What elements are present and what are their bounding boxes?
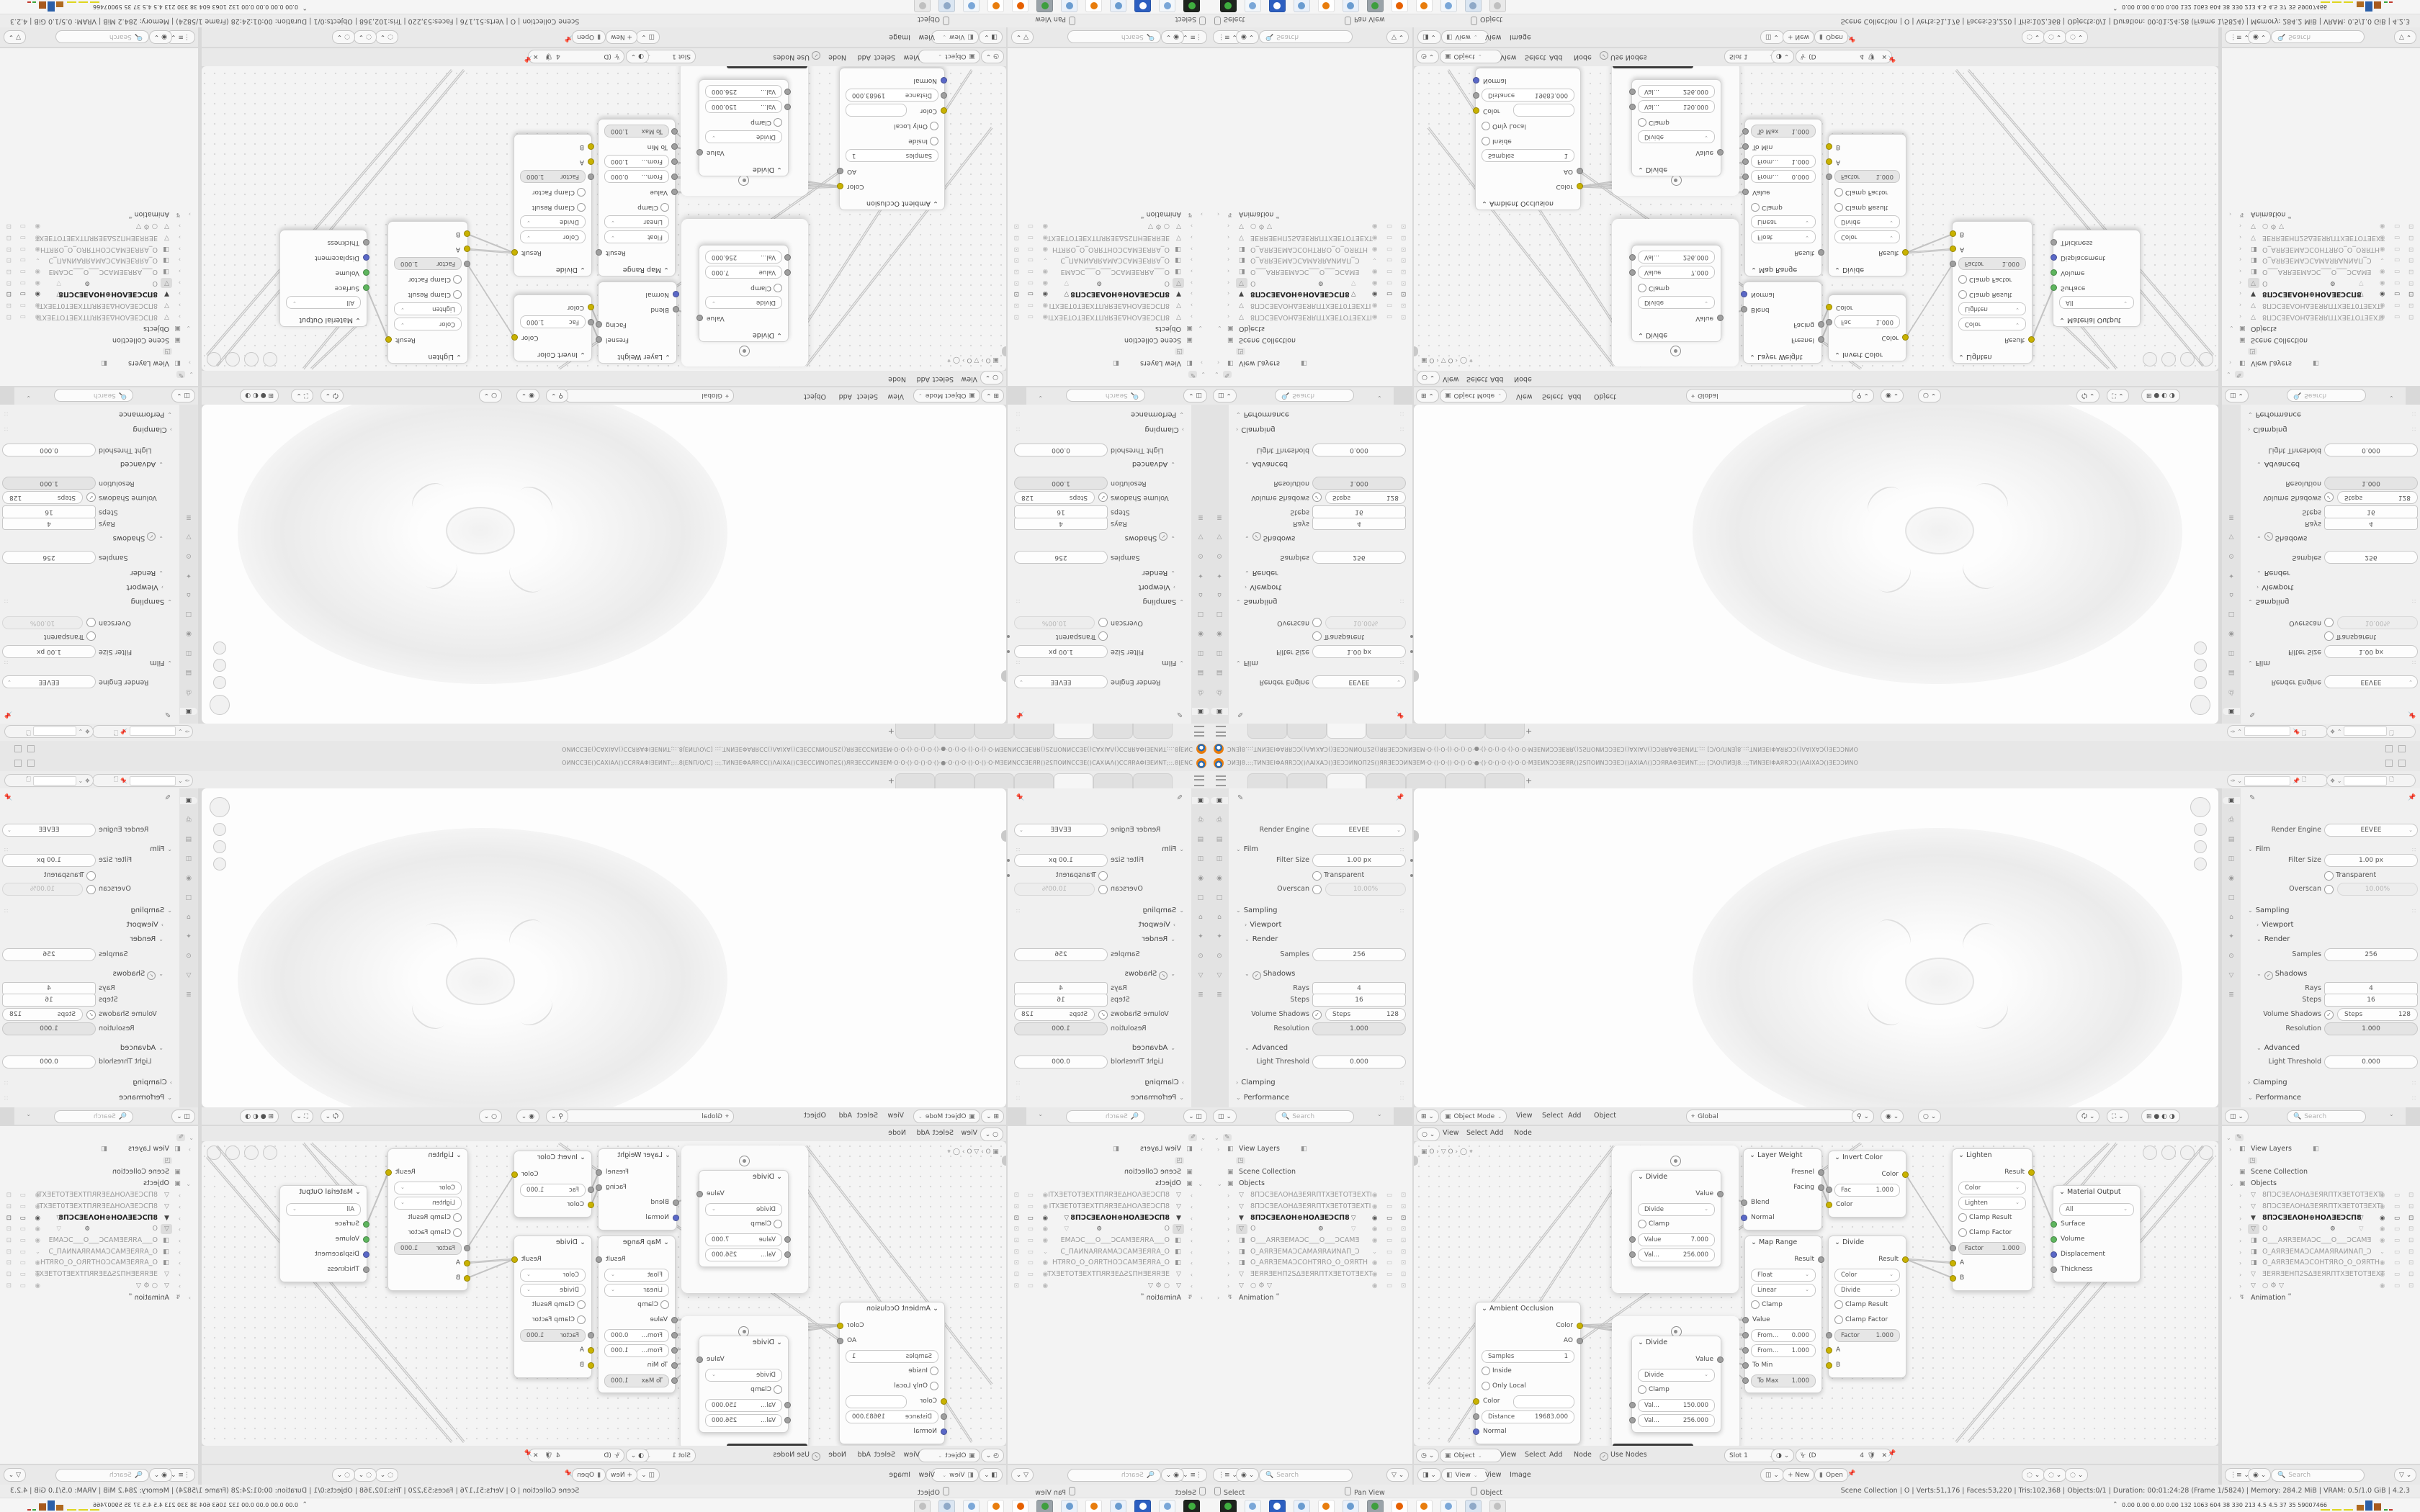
outliner-row[interactable]: ›◧View Layers◧ bbox=[2222, 1144, 2420, 1155]
copy-icon[interactable]: 🗋 bbox=[2389, 726, 2393, 737]
properties-tab-icon[interactable]: ⌂ bbox=[2223, 591, 2240, 598]
input-socket[interactable] bbox=[941, 92, 947, 99]
pin-icon[interactable]: 📌 bbox=[2293, 729, 2300, 735]
viewport-menu-add[interactable]: Add bbox=[839, 392, 852, 400]
node-field[interactable]: To Max1.000 bbox=[1751, 1374, 1816, 1387]
input-socket[interactable] bbox=[1826, 174, 1832, 180]
render-engine-dropdown[interactable]: EEVEE⌄ bbox=[2324, 824, 2418, 837]
outliner-search-input[interactable]: 🔍Search bbox=[1259, 1469, 1353, 1482]
node-dropdown[interactable]: Color⌄ bbox=[1958, 318, 2026, 330]
node-dropdown[interactable]: Lighten⌄ bbox=[1958, 302, 2026, 315]
editor-type-dropdown[interactable]: ◨ ⌄ bbox=[1417, 30, 1441, 44]
input-socket[interactable] bbox=[671, 1317, 678, 1323]
input-socket[interactable] bbox=[588, 1332, 594, 1338]
checkbox[interactable]: ✓ bbox=[86, 1010, 96, 1020]
workspace-tab[interactable] bbox=[1406, 723, 1446, 739]
open-image-button[interactable]: ▮Open bbox=[572, 1468, 606, 1482]
properties-tab-icon[interactable]: ⌂ bbox=[1211, 591, 1228, 598]
checkbox[interactable] bbox=[2324, 885, 2334, 894]
filter-dropdown[interactable]: ▽ ⌄ bbox=[1011, 1468, 1034, 1482]
minimize-button[interactable] bbox=[27, 760, 35, 767]
input-socket[interactable] bbox=[1742, 143, 1749, 150]
outliner-row[interactable]: ›▽8ΠƆCƎEΛOHΔƎEЯRΠTXƎETOTƎEXTI◉▭⊡ bbox=[2222, 1190, 2420, 1201]
node-layer-weight[interactable]: ⌄ Layer WeightFresnelFacingBlendNormal bbox=[1743, 1148, 1822, 1230]
node-menu-select[interactable]: Select bbox=[933, 1129, 954, 1137]
outliner-row[interactable]: ›◨O_AЯRƎEMAƆCAMAЯRAИNAΠ_Ɔ⌄▭⊡ bbox=[1210, 254, 1412, 265]
properties-tab-icon[interactable]: ▣ bbox=[2223, 708, 2240, 715]
grid-toggle-icon[interactable] bbox=[225, 352, 240, 366]
proportional-edit-dropdown[interactable]: ◉ ⌄ bbox=[516, 1110, 539, 1123]
output-socket[interactable] bbox=[837, 1338, 843, 1344]
calculator2-icon[interactable] bbox=[1061, 1500, 1077, 1512]
outliner-row[interactable]: ◳ bbox=[2222, 1156, 2420, 1166]
subsection-render[interactable]: ⌄Render bbox=[1142, 935, 1175, 943]
input-socket[interactable] bbox=[671, 128, 678, 135]
image-menu-image[interactable]: Image bbox=[889, 1471, 910, 1479]
overscan-field[interactable]: 10.00% bbox=[2337, 883, 2418, 896]
section-sampling[interactable]: ⌄Sampling bbox=[130, 598, 172, 606]
options-dropdown[interactable]: ⌄ bbox=[2389, 395, 2394, 401]
properties-search-input[interactable]: 🔍Search bbox=[1066, 1110, 1145, 1123]
overscan-field[interactable]: 10.00% bbox=[2, 883, 83, 896]
light-threshold-field[interactable]: 0.000 bbox=[2, 1056, 96, 1068]
outliner-row[interactable]: ›▽○ ⚙ ▽◉▭⊡ bbox=[2222, 220, 2420, 231]
overlay-toggle[interactable]: 🗘 ⌄ bbox=[2076, 389, 2099, 402]
section-film[interactable]: ⌄Film bbox=[2248, 845, 2270, 853]
filter-size-field[interactable]: 1.00 px bbox=[1014, 854, 1108, 867]
pin-icon[interactable]: 📌 bbox=[1888, 55, 1896, 62]
outliner-row[interactable]: ›↯Animation ⁴² bbox=[2222, 1292, 2420, 1303]
snap-dropdown[interactable]: ⚲ ⌄ bbox=[546, 1110, 568, 1123]
input-socket[interactable] bbox=[1950, 261, 1956, 267]
view-layer-selector[interactable]: ❖ ⌄🗋 bbox=[2326, 774, 2416, 787]
output-socket[interactable] bbox=[696, 1356, 703, 1363]
node-checkbox[interactable] bbox=[660, 1300, 669, 1309]
node-field[interactable]: Value7.000 bbox=[1638, 1233, 1715, 1246]
material-preview-dropdown[interactable]: ◑ ⌄ bbox=[626, 1449, 649, 1462]
input-socket[interactable] bbox=[1741, 306, 1747, 312]
files-icon[interactable] bbox=[938, 1500, 955, 1512]
node-dropdown[interactable]: Lighten⌄ bbox=[394, 1197, 462, 1210]
properties-tab-icon[interactable]: ⊙ bbox=[2223, 953, 2240, 960]
outliner-row[interactable]: ▣Scene Collection bbox=[2222, 334, 2420, 345]
node-invert-color[interactable]: ⌄ Invert ColorColorFac1.000Color bbox=[1828, 1151, 1906, 1218]
node-dropdown[interactable]: Float⌄ bbox=[1751, 1269, 1816, 1282]
node-menu-node[interactable]: Node bbox=[828, 53, 846, 61]
subsection-shadows[interactable]: ⌄✓Shadows bbox=[113, 532, 163, 542]
subsection-render[interactable]: ⌄Render bbox=[2257, 935, 2290, 943]
input-socket[interactable] bbox=[1826, 304, 1832, 310]
node-dropdown[interactable]: Divide⌄ bbox=[705, 130, 782, 143]
outliner-row[interactable]: ›◨O___AЯRƎEMAƆC___O___ƆCAMƎ◉▭⊡ bbox=[2222, 1236, 2420, 1246]
input-socket[interactable] bbox=[1629, 104, 1636, 110]
input-socket[interactable] bbox=[363, 1221, 369, 1228]
zoom-gizmo-icon[interactable] bbox=[263, 352, 277, 366]
subsection-advanced[interactable]: ⌄Advanced bbox=[120, 460, 163, 468]
node-dropdown[interactable]: Divide⌄ bbox=[1638, 1203, 1715, 1216]
outliner-row[interactable]: ›◨O_AЯRƎEMAƆCOHTЯRO_O_OЯRTH◉▭⊡ bbox=[1008, 243, 1210, 254]
properties-tab-icon[interactable]: ◫ bbox=[1192, 855, 1209, 863]
pin-icon[interactable]: 📌 bbox=[2408, 794, 2416, 801]
properties-tab-icon[interactable]: ≣ bbox=[1192, 513, 1209, 521]
node-checkbox[interactable] bbox=[1751, 203, 1760, 212]
node-dropdown[interactable]: Linear⌄ bbox=[1751, 215, 1816, 228]
files-icon[interactable] bbox=[1465, 0, 1482, 12]
calculator2-icon[interactable] bbox=[1061, 0, 1077, 12]
node-field[interactable]: Val...150.000 bbox=[1638, 100, 1715, 113]
snap-dropdown[interactable]: ⚲ ⌄ bbox=[1852, 1110, 1874, 1123]
section-clamping[interactable]: ›Clamping bbox=[133, 426, 172, 433]
output-socket[interactable] bbox=[1717, 149, 1724, 156]
node-field[interactable]: Value7.000 bbox=[1638, 266, 1715, 279]
node-map-range[interactable]: ⌄ Map RangeResultFloat⌄Linear⌄ClampValue… bbox=[1744, 119, 1822, 276]
section-performance[interactable]: ⌄Performance bbox=[2248, 1094, 2301, 1102]
properties-tab-icon[interactable]: ▤ bbox=[1192, 669, 1209, 676]
input-socket[interactable] bbox=[1950, 1275, 1956, 1282]
section-sampling[interactable]: ⌄Sampling bbox=[1236, 906, 1278, 914]
new-workspace-button[interactable]: + bbox=[1525, 776, 1532, 786]
resolution-field[interactable]: 1.000 bbox=[1014, 1022, 1108, 1035]
editor-type-dropdown[interactable]: ○ ⌄ bbox=[1417, 371, 1440, 384]
viewport-menu-view[interactable]: View bbox=[1516, 1112, 1533, 1120]
node-field[interactable]: To Max1.000 bbox=[604, 125, 669, 138]
outliner-row[interactable]: ›▽ƎEЯRƎEHΠ2SΔƎEЯRΠTXƎETOTƎEXT◉▭⊡ bbox=[0, 1269, 198, 1280]
render-engine-dropdown[interactable]: EEVEE⌄ bbox=[2, 824, 96, 837]
new-image-button[interactable]: + New bbox=[1783, 1468, 1814, 1482]
output-socket[interactable] bbox=[1717, 1191, 1724, 1197]
input-socket[interactable] bbox=[1826, 1187, 1832, 1193]
section-sampling[interactable]: ⌄Sampling bbox=[1142, 906, 1184, 914]
outliner-search-input[interactable]: 🔍Search bbox=[2271, 30, 2365, 43]
outliner-row[interactable]: ›▽8ΠƆCƎEΛOHΔƎEЯRΠTXƎETOTƎEXTI◉▭⊡ bbox=[1008, 311, 1210, 322]
node-dropdown[interactable]: Divide⌄ bbox=[1638, 296, 1715, 309]
gizmo-toggle[interactable]: ⛶ ⌄ bbox=[2107, 1110, 2129, 1123]
subsection-render[interactable]: ⌄Render bbox=[1245, 935, 1278, 943]
node-field[interactable]: Samples1 bbox=[1482, 149, 1574, 162]
object-context-dropdown[interactable]: ▣Object⌄ bbox=[1440, 1449, 1502, 1462]
nav-gizmo[interactable] bbox=[2190, 797, 2210, 817]
viewport-menu-view[interactable]: View bbox=[887, 392, 904, 400]
output-socket[interactable] bbox=[1902, 1171, 1909, 1178]
node-dropdown[interactable]: All⌄ bbox=[2059, 296, 2134, 309]
viewport-3d[interactable] bbox=[1414, 405, 2218, 724]
node-field[interactable]: To Max1.000 bbox=[604, 1374, 669, 1387]
subsection-shadows[interactable]: ⌄✓Shadows bbox=[1245, 532, 1295, 542]
section-performance[interactable]: ⌄Performance bbox=[1236, 1094, 1289, 1102]
image-icon[interactable]: ◌ ⌄ bbox=[375, 30, 398, 44]
workspace-tab[interactable] bbox=[1093, 773, 1133, 789]
properties-tab-icon[interactable]: ◫ bbox=[180, 855, 197, 863]
samples-field[interactable]: 256 bbox=[2, 948, 96, 961]
node-invert-color[interactable]: ⌄ Invert ColorColorFac1.000Color bbox=[514, 1151, 592, 1218]
outliner-row[interactable]: ›◨O_AЯRƎEMAƆCOHTЯRO_O_OЯRTH◉▭⊡ bbox=[0, 243, 198, 254]
pin-icon[interactable]: 📌 bbox=[4, 711, 12, 718]
grid-icon[interactable]: ◌ ⌄ bbox=[2043, 30, 2066, 44]
output-socket[interactable] bbox=[596, 336, 602, 343]
resolution-field[interactable]: 1.000 bbox=[2324, 1022, 2418, 1035]
output-socket[interactable] bbox=[696, 1191, 703, 1197]
slot-dropdown[interactable]: Slot 1⌄ bbox=[1724, 1449, 1778, 1462]
node-menu-add[interactable]: Add bbox=[1490, 375, 1503, 383]
calculator2-icon[interactable] bbox=[1343, 1500, 1359, 1512]
monitor-icon[interactable] bbox=[1036, 1500, 1053, 1512]
input-socket[interactable] bbox=[2051, 1266, 2057, 1273]
node-menu-node[interactable]: Node bbox=[828, 1451, 846, 1459]
viewport-menu-view[interactable]: View bbox=[887, 1112, 904, 1120]
subsection-viewport[interactable]: ›Viewport bbox=[2257, 583, 2293, 591]
mode-dropdown[interactable]: ▣Object Mode⌄ bbox=[913, 1110, 980, 1123]
input-socket[interactable] bbox=[784, 1236, 791, 1243]
overscan-field[interactable]: 10.00% bbox=[2, 616, 83, 629]
input-socket[interactable] bbox=[1473, 92, 1479, 99]
node-field[interactable] bbox=[846, 1395, 907, 1408]
checkbox[interactable] bbox=[1098, 618, 1108, 627]
image-icon[interactable]: ◌ ⌄ bbox=[2022, 1468, 2045, 1482]
viewport-3d[interactable] bbox=[202, 405, 1006, 724]
pin-icon[interactable]: 📌 bbox=[1847, 35, 1855, 42]
properties-tab-icon[interactable]: ✦ bbox=[2223, 933, 2240, 940]
input-socket[interactable] bbox=[363, 1266, 369, 1273]
workspace-tab[interactable] bbox=[1485, 773, 1525, 789]
outliner-row[interactable]: ›▽8ΠƆCƎEΛOHΔƎEЯRΠTXƎET0TƎEXTI◉▭⊡ bbox=[1210, 300, 1412, 310]
input-socket[interactable] bbox=[2051, 1236, 2057, 1243]
section-film[interactable]: ⌄Film bbox=[1236, 659, 1258, 667]
node-menu-add[interactable]: Add bbox=[1549, 1451, 1562, 1459]
node-layer-weight[interactable]: ⌄ Layer WeightFresnelFacingBlendNormal bbox=[598, 282, 677, 364]
node-dropdown[interactable]: Color⌄ bbox=[1834, 230, 1900, 243]
checkbox[interactable]: ✓ bbox=[1098, 492, 1108, 502]
pin-icon[interactable]: 📌 bbox=[120, 729, 127, 735]
node-field[interactable] bbox=[1513, 104, 1574, 117]
subsection-shadows[interactable]: ⌄✓Shadows bbox=[1125, 970, 1175, 980]
properties-tab-icon[interactable]: ⊙ bbox=[2223, 552, 2240, 559]
editor-type-dropdown[interactable]: ○ ⌄ bbox=[980, 371, 1003, 384]
subsection-advanced[interactable]: ⌄Advanced bbox=[120, 1044, 163, 1052]
outliner-row[interactable]: ›▽O⚙▽◉▭⊡ bbox=[1008, 1224, 1210, 1235]
render-slot-icon[interactable]: ◌ ⌄ bbox=[332, 30, 355, 44]
subsection-shadows[interactable]: ⌄✓Shadows bbox=[1125, 532, 1175, 542]
checkbox[interactable] bbox=[1312, 885, 1322, 894]
section-performance[interactable]: ⌄Performance bbox=[119, 410, 172, 418]
node-field[interactable]: From...0.000 bbox=[604, 170, 669, 183]
copy-icon[interactable]: 🗋 bbox=[2302, 775, 2306, 786]
unlink-icon[interactable]: ✕ bbox=[533, 53, 539, 60]
input-socket[interactable] bbox=[464, 230, 470, 237]
render-slot-icon[interactable]: ◌ ⌄ bbox=[332, 1468, 355, 1482]
properties-tab-icon[interactable]: ◉ bbox=[2223, 630, 2240, 637]
checkbox[interactable] bbox=[2324, 871, 2334, 881]
properties-tab-icon[interactable]: ◉ bbox=[1192, 875, 1209, 882]
pin-icon[interactable]: 📌 bbox=[1016, 711, 1024, 718]
filter-mode-dropdown[interactable]: ◉ ⌄ bbox=[149, 1468, 172, 1482]
subsection-advanced[interactable]: ⌄Advanced bbox=[2257, 1044, 2300, 1052]
output-socket[interactable] bbox=[511, 334, 518, 341]
node-divide[interactable]: ⌄ DivideValueDivide⌄ClampVal...150.000Va… bbox=[699, 1336, 789, 1433]
image-menu-image[interactable]: Image bbox=[1510, 33, 1531, 41]
node-field[interactable]: Distance19683.000 bbox=[1482, 89, 1574, 102]
node-dropdown[interactable]: Color⌄ bbox=[1834, 1269, 1900, 1282]
pin-icon[interactable]: 📌 bbox=[1396, 711, 1404, 718]
output-socket[interactable] bbox=[1902, 1256, 1909, 1263]
outliner-row[interactable]: ›▼8ΠƆCƎEΛOH⊕HOΛƎEƆCΠ8▽◉▭⊡ bbox=[1210, 288, 1412, 299]
volume-shadows-steps-field[interactable]: Steps128 bbox=[1014, 1008, 1095, 1021]
node-checkbox[interactable] bbox=[774, 1385, 782, 1394]
node-menu-node[interactable]: Node bbox=[888, 375, 906, 383]
viewport-menu-add[interactable]: Add bbox=[1568, 392, 1581, 400]
properties-tab-icon[interactable]: ≣ bbox=[1211, 513, 1228, 521]
terminal-icon[interactable] bbox=[1183, 1500, 1200, 1512]
output-socket[interactable] bbox=[837, 183, 843, 189]
outliner-row[interactable]: ›◧View Layers◧ bbox=[0, 357, 198, 368]
shading-mode-cluster[interactable]: ⊞ ● ◐ ◑ bbox=[2141, 389, 2180, 402]
material-datablock[interactable]: ⏧(D4🛡✕ bbox=[528, 1449, 624, 1462]
volume-shadows-steps-field[interactable]: Steps128 bbox=[2, 1008, 83, 1021]
outliner-search-input[interactable]: 🔍Search bbox=[55, 30, 149, 43]
ghost-icon[interactable] bbox=[1489, 1500, 1506, 1512]
properties-tab-icon[interactable]: ⎙ bbox=[2223, 688, 2240, 696]
viewport-menu-view[interactable]: View bbox=[1516, 392, 1533, 400]
camera-view-icon[interactable] bbox=[213, 858, 226, 870]
calculator-icon[interactable] bbox=[1110, 1500, 1126, 1512]
outliner-row[interactable]: ▣Scene Collection bbox=[0, 334, 198, 345]
input-socket[interactable] bbox=[1826, 1202, 1832, 1208]
checkbox[interactable]: ✓ bbox=[1312, 492, 1322, 502]
node-checkbox[interactable] bbox=[660, 203, 669, 212]
workspace-tab[interactable] bbox=[1327, 723, 1366, 739]
editor-type-dropdown[interactable]: ◨ ⌄ bbox=[979, 30, 1003, 44]
output-socket[interactable] bbox=[1577, 1323, 1583, 1329]
section-clamping[interactable]: ›Clamping bbox=[1236, 1079, 1276, 1086]
output-socket[interactable] bbox=[837, 168, 843, 174]
outliner-row[interactable]: ›▼8ΠƆCƎEΛOH⊕HOΛƎEƆCΠ8▽◉▭⊡ bbox=[1008, 288, 1210, 299]
section-film[interactable]: ⌄Film bbox=[150, 845, 172, 853]
fake-user-icon[interactable]: 🛡 bbox=[1868, 1452, 1875, 1459]
outliner-row[interactable]: ⌄▣Objects bbox=[2222, 1179, 2420, 1189]
filter-size-field[interactable]: 1.00 px bbox=[2324, 645, 2418, 658]
subsection-advanced[interactable]: ⌄Advanced bbox=[1245, 1044, 1288, 1052]
subsection-render[interactable]: ⌄Render bbox=[2257, 569, 2290, 577]
resolution-field[interactable]: 1.000 bbox=[2, 1022, 96, 1035]
workspace-tab[interactable] bbox=[1014, 723, 1054, 739]
fake-user-icon[interactable]: 🛡 bbox=[544, 53, 552, 60]
node-checkbox[interactable] bbox=[1638, 1385, 1646, 1394]
canvas-handle[interactable] bbox=[1414, 346, 1418, 356]
properties-type-dropdown[interactable]: ◫ ⌄ bbox=[1183, 1110, 1207, 1123]
node-checkbox[interactable] bbox=[577, 1315, 586, 1324]
checkbox[interactable] bbox=[1312, 871, 1322, 881]
outliner-row[interactable]: ›▼8ΠƆCƎEΛOH⊕HOΛƎEƆCΠ8▽◉▭⊡ bbox=[1008, 1213, 1210, 1224]
properties-tab-icon[interactable]: ▣ bbox=[180, 797, 197, 804]
outliner-row[interactable]: ›◧View Layers◧ bbox=[1210, 1144, 1412, 1155]
render-engine-dropdown[interactable]: EEVEE⌄ bbox=[1312, 675, 1406, 688]
properties-tab-icon[interactable]: ▣ bbox=[1211, 797, 1228, 804]
pin-icon[interactable]: 📌 bbox=[4, 794, 12, 801]
scene-selector[interactable]: ✑ ⌄📌🗋 bbox=[2227, 774, 2328, 787]
overscan-field[interactable]: 10.00% bbox=[1325, 616, 1406, 629]
input-socket[interactable] bbox=[671, 143, 678, 150]
node-lighten[interactable]: ⌄ LightenResultColor⌄Lighten⌄Clamp Resul… bbox=[387, 1148, 468, 1291]
filter-size-field[interactable]: 1.00 px bbox=[1312, 645, 1406, 658]
node-field[interactable]: Fac1.000 bbox=[1834, 1184, 1900, 1197]
node-divide[interactable]: ⌄ DivideResultColor⌄Divide⌄Clamp ResultC… bbox=[514, 134, 592, 276]
input-socket[interactable] bbox=[588, 1362, 594, 1369]
properties-tab-icon[interactable]: ✦ bbox=[180, 933, 197, 940]
outliner-row[interactable]: ⌄▣Objects bbox=[1008, 323, 1210, 333]
editor-type-dropdown[interactable]: ⊞ ⌄ bbox=[981, 1110, 1004, 1123]
checkbox[interactable] bbox=[86, 631, 96, 641]
gizmo-toggle[interactable]: ⛶ ⌄ bbox=[291, 1110, 313, 1123]
node-menu-node[interactable]: Node bbox=[1514, 1129, 1532, 1137]
blender-icon[interactable] bbox=[1085, 1500, 1102, 1512]
properties-tab-icon[interactable]: ✦ bbox=[1211, 933, 1228, 940]
zoom-gizmo-icon[interactable] bbox=[263, 1146, 277, 1160]
node-dropdown[interactable]: Divide⌄ bbox=[1638, 130, 1715, 143]
output-socket[interactable] bbox=[596, 249, 602, 256]
browse-icon[interactable]: ⏧ bbox=[614, 53, 619, 60]
node-checkbox[interactable] bbox=[1958, 1228, 1967, 1237]
node-field[interactable]: Samples1 bbox=[846, 149, 938, 162]
tray-expand-chevron[interactable]: ⌃ bbox=[302, 1501, 308, 1508]
node-field[interactable]: Factor1.000 bbox=[394, 1242, 462, 1255]
output-socket[interactable] bbox=[1818, 1184, 1824, 1191]
subsection-render[interactable]: ⌄Render bbox=[1142, 569, 1175, 577]
subsection-shadows[interactable]: ⌄✓Shadows bbox=[2257, 970, 2307, 980]
input-socket[interactable] bbox=[1742, 128, 1749, 135]
unlink-icon[interactable]: ✕ bbox=[1881, 1452, 1887, 1459]
pin-icon[interactable]: 📌 bbox=[1847, 1470, 1855, 1477]
editor-type-dropdown[interactable]: ⊞ ⌄ bbox=[1416, 389, 1439, 402]
workspace-tab[interactable] bbox=[1366, 723, 1406, 739]
render-engine-dropdown[interactable]: EEVEE⌄ bbox=[1312, 824, 1406, 837]
node-field[interactable]: To Max1.000 bbox=[1751, 125, 1816, 138]
snap-dropdown[interactable]: ⚲ ⌄ bbox=[1852, 389, 1874, 402]
outliner-row[interactable]: ▣Scene Collection bbox=[1008, 1167, 1210, 1178]
node-checkbox[interactable] bbox=[577, 1300, 586, 1309]
workspace-tab[interactable] bbox=[1247, 723, 1287, 739]
outliner-row[interactable]: ›◨O_AЯRƎEMAƆCAMAЯRAИNAΠ_Ɔ⌄▭⊡ bbox=[0, 1247, 198, 1258]
node-field[interactable]: From...0.000 bbox=[1751, 170, 1816, 183]
node-checkbox[interactable] bbox=[930, 137, 938, 145]
pan-gizmo-icon[interactable] bbox=[2161, 1146, 2176, 1160]
filter-mode-dropdown[interactable]: ◉ ⌄ bbox=[149, 30, 172, 44]
outliner-row[interactable]: ›▼8ΠƆCƎEΛOH⊕HOΛƎEƆCΠ8▽◉▭⊡ bbox=[2222, 1213, 2420, 1224]
pin-icon[interactable]: 📌 bbox=[524, 55, 532, 62]
viewport-3d[interactable] bbox=[1414, 788, 2218, 1107]
viewport-menu-add[interactable]: Add bbox=[1568, 1112, 1581, 1120]
node-dropdown[interactable]: Color⌄ bbox=[1958, 1182, 2026, 1194]
viewport-menu-object[interactable]: Object bbox=[1594, 1112, 1616, 1120]
outliner-row[interactable]: ›▽8ΠƆCƎEΛOHΔƎEЯRΠTXƎETOTƎEXTI◉▭⊡ bbox=[1008, 1190, 1210, 1201]
viewport-3d[interactable] bbox=[202, 788, 1006, 1107]
section-clamping[interactable]: ›Clamping bbox=[133, 1079, 172, 1086]
properties-tab-icon[interactable]: □ bbox=[1192, 611, 1209, 618]
input-socket[interactable] bbox=[363, 269, 369, 276]
subsection-advanced[interactable]: ⌄Advanced bbox=[1132, 1044, 1175, 1052]
unlink-icon[interactable]: ✕ bbox=[533, 1452, 539, 1459]
outliner-row[interactable]: ›▽○ ⚙ ▽◉▭⊡ bbox=[1210, 220, 1412, 231]
workspace-tab[interactable] bbox=[1014, 773, 1054, 789]
node-menu-view[interactable]: View bbox=[1443, 1129, 1459, 1137]
subsection-render[interactable]: ⌄Render bbox=[130, 935, 163, 943]
image-menu-view[interactable]: View bbox=[1485, 1471, 1502, 1479]
properties-tab-icon[interactable]: □ bbox=[2223, 611, 2240, 618]
proportional-edit-dropdown[interactable]: ◉ ⌄ bbox=[516, 389, 539, 402]
properties-tab-icon[interactable]: ≣ bbox=[1192, 991, 1209, 999]
node-field[interactable]: Distance19683.000 bbox=[846, 1410, 938, 1423]
blender-icon[interactable] bbox=[1318, 1500, 1335, 1512]
properties-tab-icon[interactable]: ▽ bbox=[180, 533, 197, 540]
properties-type-dropdown[interactable]: ◫ ⌄ bbox=[2225, 1110, 2249, 1123]
